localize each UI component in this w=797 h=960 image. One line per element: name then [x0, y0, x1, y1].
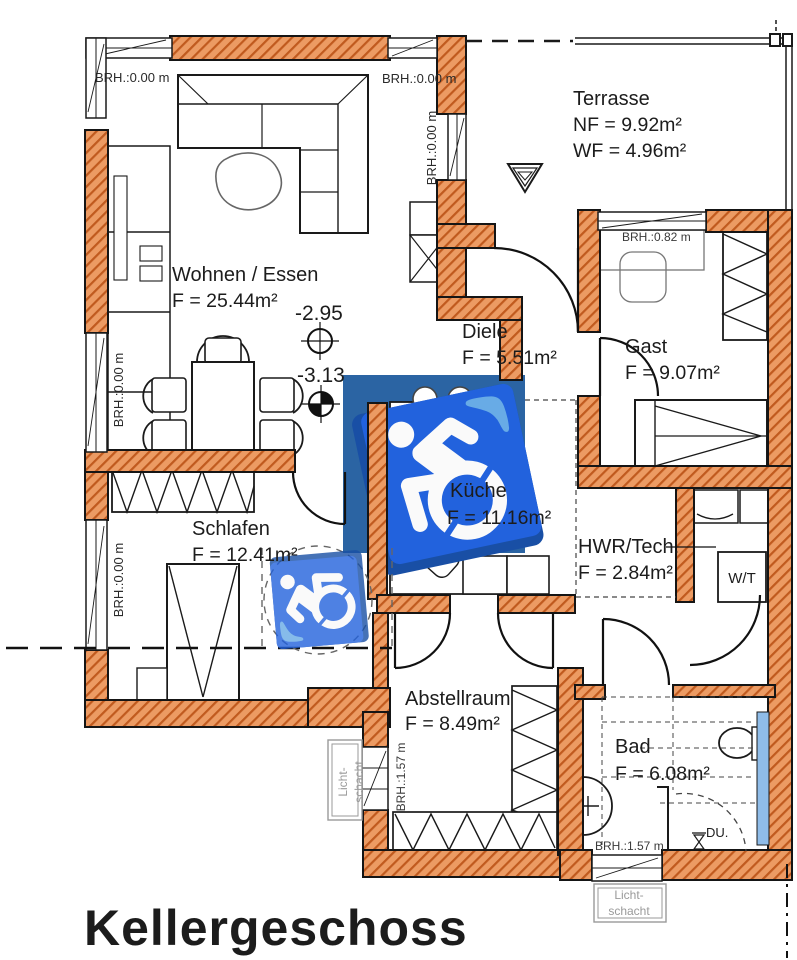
room-label-diele: Diele: [462, 321, 508, 343]
light-shaft-left-label-2: schacht: [352, 761, 366, 803]
shower-drain-icon: [694, 835, 704, 849]
sill-label-left-lower: BRH.:0.00 m: [111, 543, 126, 617]
room-label-gast: Gast: [625, 336, 668, 358]
room-label-bad: Bad: [615, 736, 651, 758]
room-label-wohnen: Wohnen / Essen: [172, 264, 318, 286]
level-marker-upper-icon: [301, 322, 339, 360]
window-gast: [598, 212, 706, 230]
coffee-table: [216, 153, 281, 210]
room-area-terrasse-nf: NF = 9.92m²: [573, 114, 682, 136]
wardrobe-gast: [723, 228, 767, 340]
shower-door-arc: [676, 793, 746, 851]
room-area-abstellraum: F = 8.49m²: [405, 713, 500, 735]
room-area-gast: F = 9.07m²: [625, 362, 720, 384]
room-area-wohnen: F = 25.44m²: [172, 290, 278, 312]
window-top-2: [388, 38, 437, 58]
window-left-upper: [86, 333, 107, 452]
room-area-diele: F = 5.51m²: [462, 347, 557, 369]
floorplan-drawing: ♿: [0, 0, 797, 960]
sill-label-top-left: BRH.:0.00 m: [95, 70, 169, 85]
room-label-terrasse: Terrasse: [573, 88, 650, 110]
room-label-kueche: Küche: [450, 480, 507, 502]
light-shaft-bottom-label-2: schacht: [608, 904, 650, 918]
level-value-diele: -3.13: [297, 364, 345, 387]
sill-label-bad: BRH.:1.57 m: [595, 839, 664, 853]
room-label-hwr: HWR/Tech.: [578, 536, 679, 558]
bath-fixtures: [578, 727, 763, 855]
bed-gast: [635, 400, 767, 472]
light-shaft-left-label-1: Licht-: [336, 767, 350, 796]
door-hall-right: [498, 613, 553, 668]
sill-label-wohnen-right: BRH.:0.00 m: [424, 111, 439, 185]
bed-schlafen: [137, 564, 239, 700]
wardrobe-schlafen: [112, 470, 254, 512]
door-bad: [603, 619, 669, 685]
window-wohnen-right: [448, 114, 466, 180]
room-label-abstellraum: Abstellraum: [405, 688, 511, 710]
sofa: [178, 75, 368, 233]
plan-title: Kellergeschoss: [84, 900, 468, 956]
door-schlafen: [293, 472, 345, 524]
washer-dryer-label: W/T: [728, 570, 756, 587]
door-hall-left: [395, 613, 450, 668]
drain-icon: [508, 164, 542, 192]
room-area-schlafen: F = 12.41m²: [192, 544, 298, 566]
sill-label-left-upper: BRH.:0.00 m: [111, 353, 126, 427]
glass-wall-bad: [757, 712, 769, 845]
room-label-schlafen: Schlafen: [192, 518, 270, 540]
shower-label: DU.: [706, 825, 728, 840]
toilet: [719, 728, 755, 758]
shelves-abstellraum: [393, 686, 557, 852]
door-hwr: [690, 595, 760, 665]
light-shaft-bottom-label-1: Licht-: [614, 888, 643, 902]
room-area-hwr: F = 2.84m²: [578, 562, 673, 584]
sill-label-top-right: BRH.:0.00 m: [382, 71, 456, 86]
room-area-kueche: F = 11.16m²: [447, 507, 552, 529]
sill-label-abstellraum: BRH.:1.57 m: [394, 743, 408, 812]
floorplan-page: ♿: [0, 0, 797, 960]
room-area-bad: F = 6.08m²: [615, 763, 710, 785]
sill-label-gast: BRH.:0.82 m: [622, 230, 691, 244]
level-marker-lower-icon: [302, 385, 340, 423]
window-bad: [592, 855, 662, 881]
window-left-lower: [86, 520, 107, 650]
level-value-wohnen: -2.95: [295, 302, 343, 325]
room-area-terrasse-wf: WF = 4.96m²: [573, 140, 687, 162]
